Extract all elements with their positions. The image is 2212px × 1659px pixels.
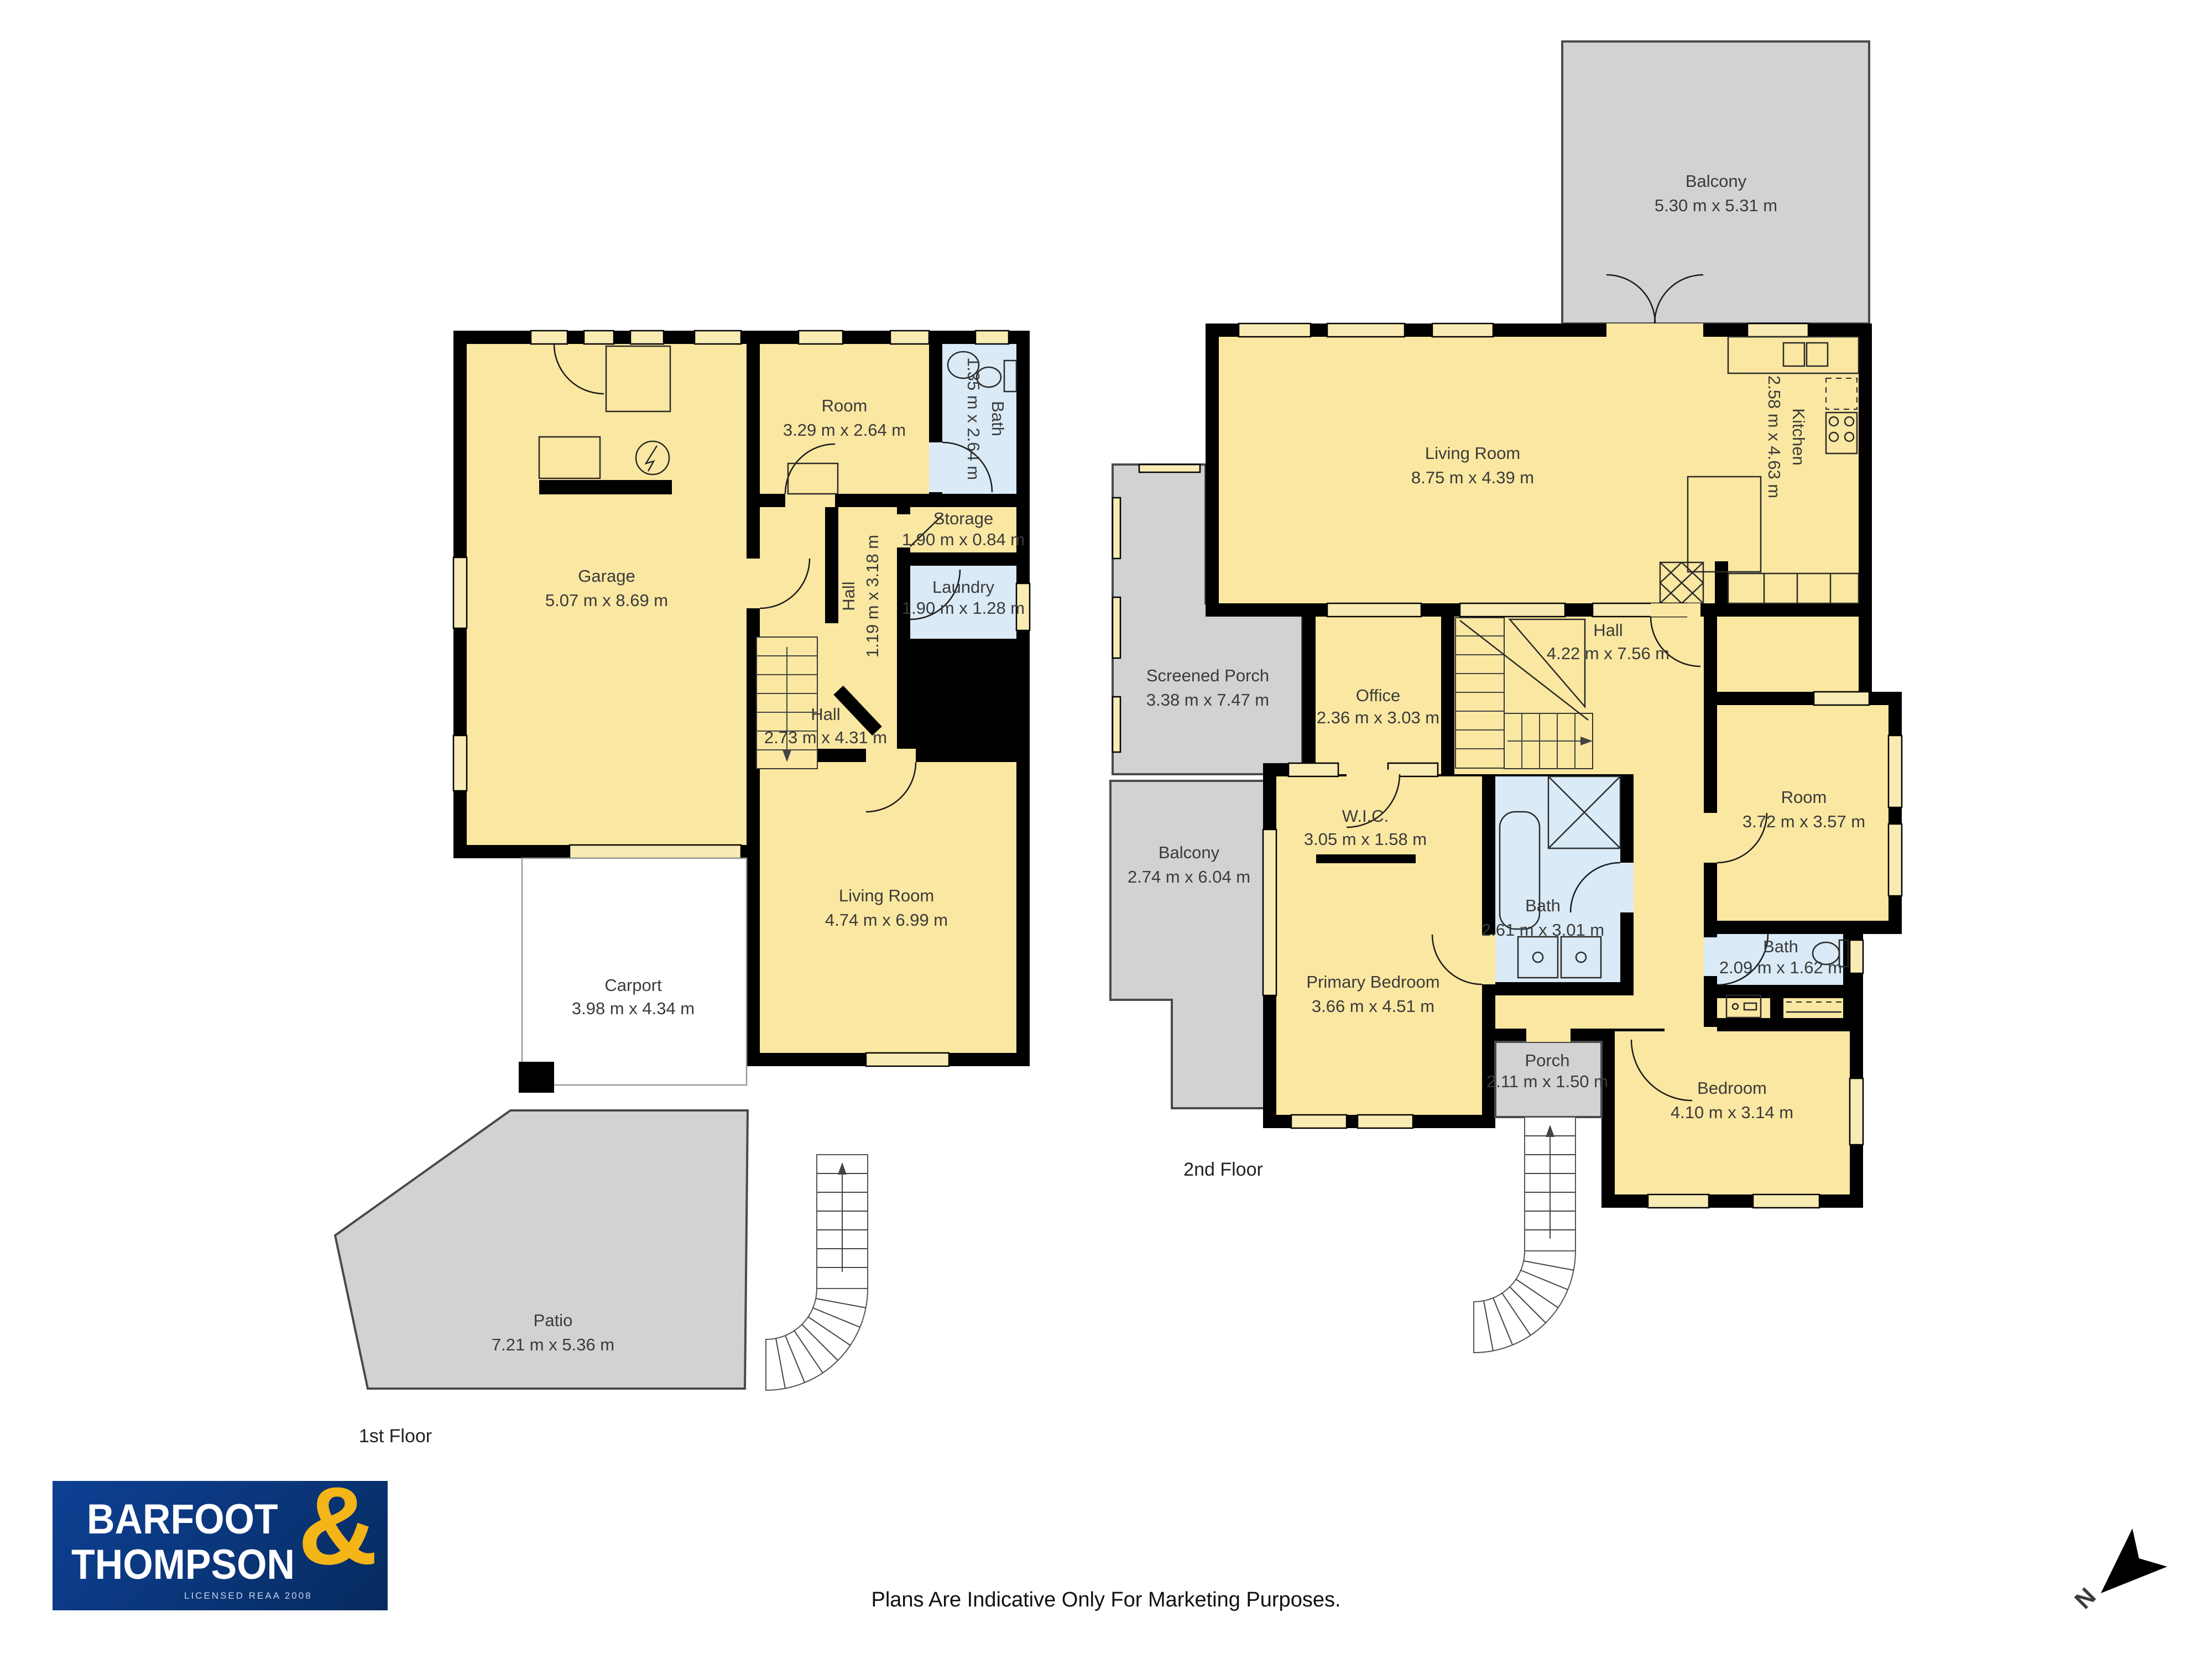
bath-main-name: Bath: [1525, 896, 1561, 915]
porch-name: Porch: [1525, 1051, 1570, 1070]
living1-dims: 4.74 m x 6.99 m: [825, 910, 948, 930]
patio-name: Patio: [534, 1311, 573, 1330]
bath1-name: Bath: [988, 401, 1008, 436]
staircase-curved-2nd: [1474, 1117, 1575, 1353]
disclaimer-text: Plans Are Indicative Only For Marketing …: [0, 1588, 2212, 1612]
staircase-curved-1st: [766, 1155, 868, 1390]
laundry-dims: 1.90 m x 1.28 m: [902, 598, 1025, 618]
living2-kitchen-area: [1219, 337, 1859, 603]
carport-area: [522, 858, 747, 1085]
floor-plan-1st: Garage 5.07 m x 8.69 m Room 3.29 m x 2.6…: [335, 331, 1030, 1447]
hall2-dims: 4.22 m x 7.56 m: [1547, 644, 1670, 663]
living2-name: Living Room: [1425, 444, 1520, 463]
bedroom-dims: 4.10 m x 3.14 m: [1671, 1103, 1793, 1122]
porch-dims: 2.11 m x 1.50 m: [1486, 1072, 1608, 1091]
garage-room-dims: 5.07 m x 8.69 m: [545, 591, 668, 610]
hall2-name: Hall: [1593, 620, 1623, 640]
storage-dims: 1.90 m x 0.84 m: [902, 530, 1025, 549]
hall-upper-name: Hall: [839, 581, 858, 611]
closet-rod: [1316, 854, 1416, 863]
floor-plan-2nd: Balcony 5.30 m x 5.31 m Living Room 8.75…: [1110, 41, 1902, 1353]
linen-closet-area: [1783, 998, 1843, 1018]
room2-dims: 3.72 m x 3.57 m: [1743, 812, 1865, 831]
balcony-top-dims: 5.30 m x 5.31 m: [1655, 196, 1777, 215]
north-arrow-icon: N: [2068, 1500, 2201, 1632]
logo-line1: BARFOOT: [87, 1495, 278, 1543]
north-label: N: [2069, 1583, 2101, 1614]
floor1-caption: 1st Floor: [359, 1426, 432, 1447]
balcony-side-name: Balcony: [1159, 843, 1220, 862]
kitchen-name: Kitchen: [1789, 408, 1808, 465]
wic-dims: 3.05 m x 1.58 m: [1304, 830, 1427, 849]
wic-primary-area: [1276, 776, 1482, 1115]
hall2-upper-right-area: [1717, 617, 1859, 692]
hall-wall-stub: [825, 507, 838, 623]
balcony-top-name: Balcony: [1686, 171, 1747, 191]
garage-room-name: Garage: [578, 566, 635, 586]
floorplan-canvas: Garage 5.07 m x 8.69 m Room 3.29 m x 2.6…: [0, 0, 2212, 1659]
room1-name: Room: [822, 396, 868, 415]
wic-name: W.I.C.: [1342, 806, 1389, 826]
bedroom-name: Bedroom: [1697, 1078, 1767, 1098]
staircase-interior-1st: [757, 637, 817, 769]
bath1-dims: 1.35 m x 2.64 m: [964, 357, 983, 480]
laundry-name: Laundry: [932, 577, 995, 597]
hall-main-name: Hall: [811, 705, 840, 724]
kitchen-dims: 2.58 m x 4.63 m: [1765, 375, 1784, 498]
balcony-side-area: [1110, 781, 1269, 1108]
primary-bedroom-dims: 3.66 m x 4.51 m: [1312, 997, 1434, 1016]
office-name: Office: [1356, 686, 1400, 705]
carport-name: Carport: [604, 975, 662, 995]
room1-dims: 3.29 m x 2.64 m: [783, 420, 906, 440]
hall2-lower-area: [1495, 995, 1704, 1029]
hall-main-dims: 2.73 m x 4.31 m: [764, 728, 887, 747]
screened-porch-name: Screened Porch: [1146, 666, 1269, 685]
hall-upper-dims: 1.19 m x 3.18 m: [863, 535, 882, 658]
bath-main-dims: 2.61 m x 3.01 m: [1481, 920, 1604, 940]
primary-bedroom-name: Primary Bedroom: [1306, 972, 1439, 992]
floor2-caption: 2nd Floor: [1183, 1159, 1263, 1180]
living1-name: Living Room: [839, 886, 934, 905]
hall2-corridor-area: [1634, 617, 1704, 1029]
living1-area: [760, 762, 1016, 1053]
balcony-side-dims: 2.74 m x 6.04 m: [1128, 867, 1250, 886]
bath2-dims: 2.09 m x 1.62 m: [1719, 958, 1842, 977]
floorplan-page: Garage 5.07 m x 8.69 m Room 3.29 m x 2.6…: [0, 0, 2212, 1659]
living2-dims: 8.75 m x 4.39 m: [1411, 468, 1534, 487]
room2-name: Room: [1781, 787, 1827, 807]
logo-line2: THOMPSON: [71, 1541, 295, 1589]
patio-dims: 7.21 m x 5.36 m: [492, 1335, 614, 1354]
bath2-name: Bath: [1763, 937, 1798, 956]
storage-name: Storage: [933, 509, 994, 528]
screened-porch-dims: 3.38 m x 7.47 m: [1146, 690, 1269, 709]
carport-dims: 3.98 m x 4.34 m: [572, 999, 695, 1018]
office-dims: 2.36 m x 3.03 m: [1317, 708, 1439, 727]
room1-area: [760, 344, 929, 494]
carport-post: [519, 1062, 554, 1093]
logo-ampersand: &: [298, 1481, 378, 1582]
